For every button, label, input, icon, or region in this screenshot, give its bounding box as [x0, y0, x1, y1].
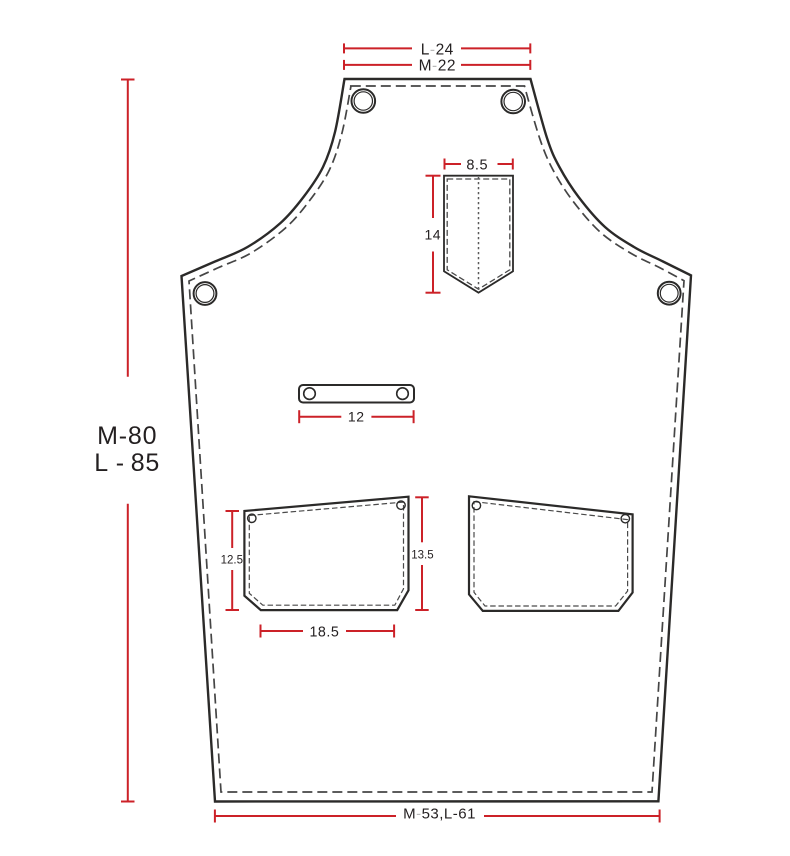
svg-text:M-53,L-61: M-53,L-61: [403, 806, 476, 823]
svg-text:M-80: M-80: [97, 422, 157, 450]
svg-text:13.5: 13.5: [411, 549, 433, 561]
svg-text:L-24: L-24: [421, 41, 454, 58]
svg-text:M-22: M-22: [419, 58, 456, 75]
svg-text:12: 12: [348, 408, 365, 424]
svg-text:L - 85: L - 85: [94, 449, 160, 477]
svg-text:8.5: 8.5: [466, 158, 488, 174]
svg-text:14: 14: [425, 227, 442, 243]
svg-text:18.5: 18.5: [309, 625, 339, 641]
svg-text:12.5: 12.5: [221, 555, 243, 567]
